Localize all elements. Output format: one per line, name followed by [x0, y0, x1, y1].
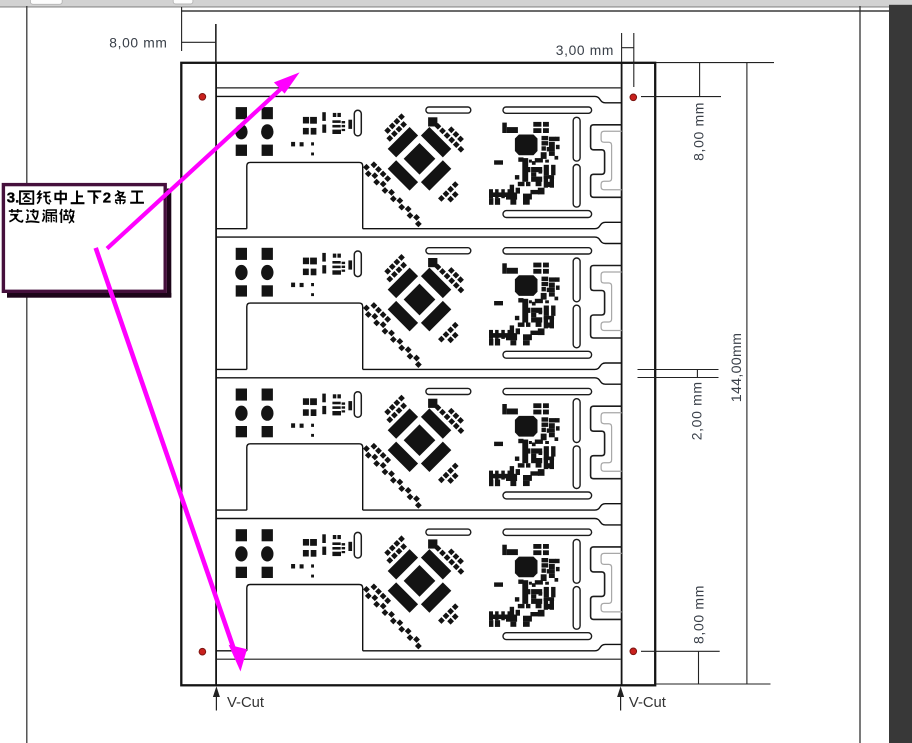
svg-text:2: 2: [103, 190, 111, 207]
svg-text:3,00 mm: 3,00 mm: [556, 43, 614, 58]
svg-text:2,00 mm: 2,00 mm: [689, 381, 705, 440]
svg-text:3.: 3.: [7, 190, 20, 207]
svg-text:8,00 mm: 8,00 mm: [691, 585, 707, 644]
svg-text:V-Cut: V-Cut: [629, 695, 666, 711]
svg-text:8,00 mm: 8,00 mm: [109, 35, 167, 50]
svg-text:144,00mm: 144,00mm: [729, 333, 745, 402]
svg-text:8,00 mm: 8,00 mm: [691, 102, 707, 161]
svg-text:V-Cut: V-Cut: [227, 695, 264, 711]
